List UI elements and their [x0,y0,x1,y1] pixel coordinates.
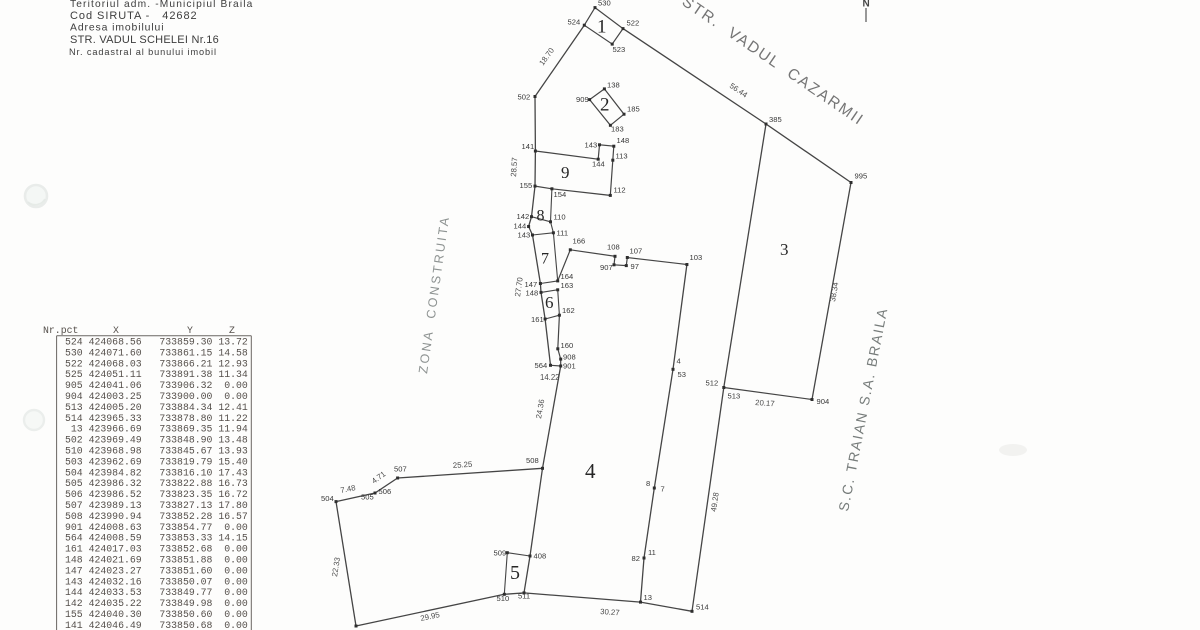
svg-text:4: 4 [585,459,596,483]
svg-text:97: 97 [631,262,639,271]
svg-text:503 423962.69 733819.79 15.4: 503 423962.69 733819.79 15.40 [65,456,248,467]
svg-text:144: 144 [592,160,605,169]
svg-text:522: 522 [627,19,640,28]
svg-text:143 424032.16 733850.07 0.0: 143 424032.16 733850.07 0.00 [65,576,248,587]
svg-text:103: 103 [690,253,703,262]
svg-text:154: 154 [554,190,567,199]
svg-text:506 423986.52 733823.35 16.7: 506 423986.52 733823.35 16.72 [65,489,248,500]
svg-text:505: 505 [361,493,374,502]
svg-text:505 423986.32 733822.88 16.7: 505 423986.32 733822.88 16.73 [65,478,248,489]
svg-text:163: 163 [561,281,574,290]
svg-text:162: 162 [562,306,575,315]
svg-text:508 423990.94 733852.28 16.5: 508 423990.94 733852.28 16.57 [65,511,248,522]
svg-text:530: 530 [598,0,611,8]
svg-text:504 423984.82 733816.10 17.4: 504 423984.82 733816.10 17.43 [65,467,248,478]
svg-text:110: 110 [554,213,566,222]
svg-text:508: 508 [526,456,539,465]
svg-text:144: 144 [514,222,527,231]
svg-text:STR. VADUL SCHELEI Nr.16: STR. VADUL SCHELEI Nr.16 [70,34,219,46]
svg-text:506: 506 [379,487,392,496]
svg-text:14.22: 14.22 [540,373,560,382]
svg-text:138: 138 [607,81,620,90]
svg-text:13 423966.69 733869.35 11.94: 13 423966.69 733869.35 11.94 [65,424,248,435]
svg-text:908: 908 [563,353,576,362]
svg-text:524: 524 [568,18,581,27]
svg-text:530 424071.60 733861.15 14.5: 530 424071.60 733861.15 14.58 [65,347,248,358]
svg-text:142 424035.22 733849.98 0.0: 142 424035.22 733849.98 0.00 [65,598,248,609]
svg-text:995: 995 [855,172,868,181]
svg-text:7: 7 [661,485,665,494]
svg-text:11: 11 [648,548,656,557]
svg-text:Nr.pct: Nr.pct [43,325,78,336]
svg-text:385: 385 [769,115,782,124]
svg-text:502: 502 [518,93,531,102]
svg-text:Y: Y [187,325,193,336]
svg-text:148: 148 [526,289,539,298]
svg-text:Teritoriul adm. -Municipiul Br: Teritoriul adm. -Municipiul Braila [70,0,253,10]
svg-text:30.27: 30.27 [600,607,620,617]
svg-text:9: 9 [561,163,570,182]
svg-text:108: 108 [607,243,620,252]
svg-text:111: 111 [557,229,569,238]
svg-text:524 424068.56 733859.30 13.7: 524 424068.56 733859.30 13.72 [65,337,248,348]
svg-text:161: 161 [531,315,544,324]
svg-text:143: 143 [518,231,531,240]
svg-text:904: 904 [817,397,830,406]
svg-text:107: 107 [630,247,643,256]
svg-text:143: 143 [585,141,598,150]
svg-text:907: 907 [600,263,613,272]
svg-text:148: 148 [617,136,630,145]
svg-text:X: X [113,325,119,336]
svg-text:507: 507 [394,465,407,474]
svg-text:2: 2 [600,95,610,116]
svg-text:509: 509 [494,549,507,558]
svg-text:183: 183 [611,125,624,134]
svg-text:3: 3 [780,240,789,259]
svg-text:82: 82 [632,554,640,563]
svg-text:28.57: 28.57 [509,157,519,177]
svg-text:7: 7 [541,251,549,268]
svg-text:564: 564 [535,361,548,370]
svg-text:8: 8 [646,479,650,488]
svg-text:502 423969.49 733848.90 13.4: 502 423969.49 733848.90 13.48 [65,435,248,446]
svg-text:564 424008.59 733853.33 14.1: 564 424008.59 733853.33 14.15 [65,533,248,544]
svg-text:1: 1 [597,17,607,38]
svg-text:20.17: 20.17 [755,398,775,408]
svg-text:5: 5 [510,562,520,584]
svg-text:4: 4 [677,357,681,366]
svg-text:Z: Z [229,325,235,336]
svg-text:901: 901 [563,362,576,371]
svg-text:142: 142 [517,212,530,221]
svg-text:522 424068.03 733866.21 12.9: 522 424068.03 733866.21 12.93 [65,358,248,369]
svg-text:905 424041.06 733906.32 0.0: 905 424041.06 733906.32 0.00 [65,380,248,391]
svg-text:112: 112 [614,186,626,195]
svg-text:514: 514 [696,603,709,612]
svg-text:901 424008.63 733854.77 0.0: 901 424008.63 733854.77 0.00 [65,522,248,533]
svg-text:525 424051.11 733891.38 11.3: 525 424051.11 733891.38 11.34 [65,369,248,380]
svg-text:514 423965.33 733878.80 11.2: 514 423965.33 733878.80 11.22 [65,413,248,424]
svg-text:13: 13 [644,593,652,602]
svg-text:513 424005.20 733884.34 12.4: 513 424005.20 733884.34 12.41 [65,402,248,413]
svg-text:141 424046.49 733850.68 0.0: 141 424046.49 733850.68 0.00 [65,620,248,630]
svg-text:510 423968.98 733845.67 13.9: 510 423968.98 733845.67 13.93 [65,446,248,457]
svg-text:166: 166 [573,237,586,246]
svg-text:185: 185 [627,105,640,114]
svg-text:8: 8 [537,208,545,225]
svg-text:164: 164 [561,272,574,281]
svg-text:160: 160 [561,341,574,350]
svg-text:408: 408 [534,552,547,561]
svg-text:144 424033.53 733849.77 0.0: 144 424033.53 733849.77 0.00 [65,587,248,598]
svg-text:909: 909 [576,95,589,104]
svg-text:507 423989.13 733827.13 17.8: 507 423989.13 733827.13 17.80 [65,500,248,511]
svg-text:113: 113 [616,152,628,161]
svg-text:6: 6 [545,293,554,312]
svg-text:53: 53 [678,370,686,379]
svg-text:161 424017.03 733852.68 0.0: 161 424017.03 733852.68 0.00 [65,544,248,555]
svg-text:25.25: 25.25 [453,460,474,470]
svg-text:147 424023.27 733851.60 0.0: 147 424023.27 733851.60 0.00 [65,565,248,576]
svg-text:Cod SIRUTA - 42682: Cod SIRUTA - 42682 [70,10,198,22]
svg-text:155: 155 [520,181,533,190]
svg-text:512: 512 [706,379,719,388]
svg-text:523: 523 [613,45,626,54]
svg-text:510: 510 [497,594,510,603]
svg-text:155 424040.30 733850.60 0.0: 155 424040.30 733850.60 0.00 [65,609,248,620]
svg-text:513: 513 [728,392,741,401]
svg-text:141: 141 [522,142,535,151]
svg-text:Nr. cadastral al bunului imobi: Nr. cadastral al bunului imobil [69,47,217,57]
svg-text:Adresa imobilului: Adresa imobilului [70,23,164,34]
svg-text:511: 511 [518,592,530,601]
svg-text:904 424003.25 733900.00 0.0: 904 424003.25 733900.00 0.00 [65,391,248,402]
svg-text:504: 504 [321,494,334,503]
svg-text:148 424021.69 733851.88 0.0: 148 424021.69 733851.88 0.00 [65,555,248,566]
